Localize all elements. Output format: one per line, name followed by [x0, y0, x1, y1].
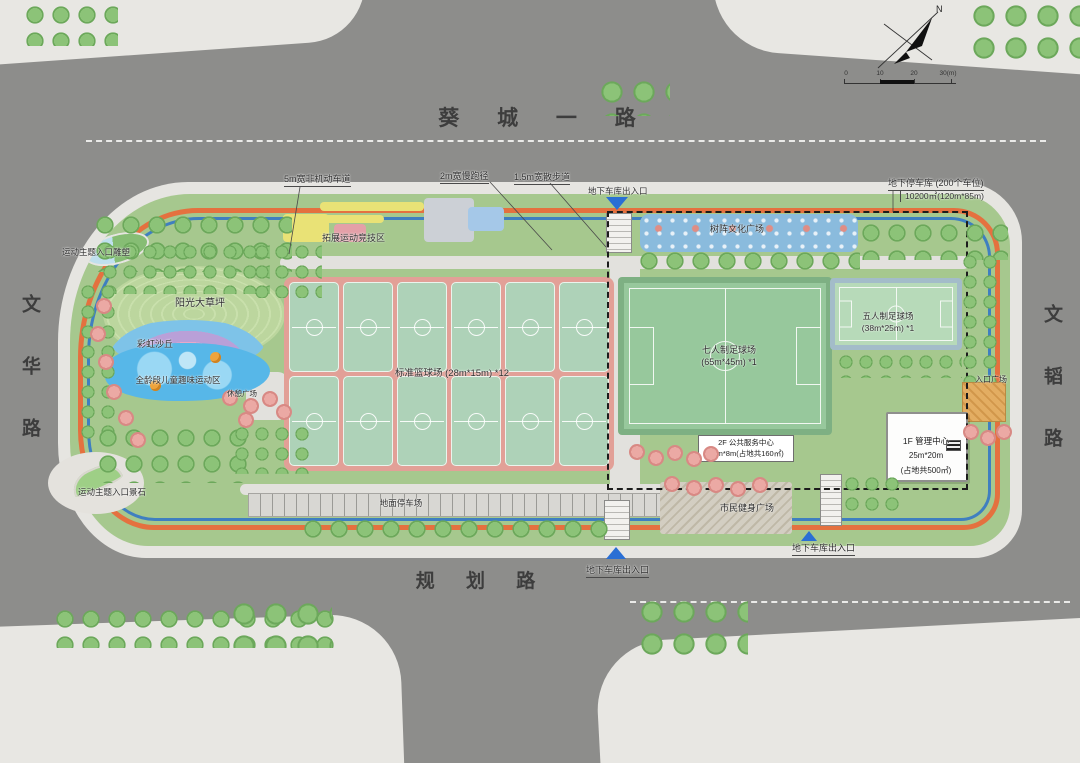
- scale-num: 10: [876, 70, 883, 77]
- service-center-name: 2F 公共服务中心: [718, 438, 774, 448]
- road-name-left: 文 华 路: [16, 294, 43, 448]
- label-tree-plaza: 树阵文化广场: [710, 222, 764, 235]
- tree-cluster: [636, 596, 748, 658]
- tree-cluster: [95, 425, 255, 483]
- pink-tree: [667, 445, 683, 461]
- label-children-zone: 全龄段儿童趣味运动区: [135, 374, 220, 386]
- label-mgmt-center-area: (占地共500㎡): [901, 465, 952, 476]
- road-name-right: 文 韬 路: [1038, 304, 1065, 458]
- scale-tick: [844, 79, 845, 84]
- site-plan: 2F 公共服务中心 20m*8m(占地共160㎡): [0, 0, 1080, 763]
- lane-marking-top: [86, 140, 1046, 142]
- label-jog-lane: 2m宽慢跑径: [440, 169, 489, 184]
- garage-exit-marker-top: [606, 197, 628, 210]
- pink-tree: [130, 432, 146, 448]
- scale-num: 30(m): [940, 70, 957, 77]
- pink-tree: [686, 480, 702, 496]
- tree-cluster: [232, 424, 312, 474]
- pink-tree: [708, 477, 724, 493]
- basketball-court: [397, 376, 447, 466]
- label-entry-plaza: 入口广场: [975, 374, 1007, 385]
- label-garage-exit-bottom: 地下车库出入口: [586, 563, 649, 578]
- scale-bar: 0 10 20 30(m): [844, 66, 956, 86]
- label-surface-parking: 地面停车场: [380, 497, 423, 509]
- pink-tree: [730, 481, 746, 497]
- tree-column: [960, 252, 1002, 382]
- tree-cluster: [842, 474, 902, 514]
- pink-tree: [703, 446, 719, 462]
- pink-tree: [96, 298, 112, 314]
- garage-exit-marker-bottom: [606, 547, 626, 559]
- label-underground-parking: 地下停车库 (200个车位): [888, 176, 984, 191]
- road-name-bottom: 规 划 路: [416, 566, 549, 593]
- entry-plaza-surface: [962, 382, 1006, 422]
- basketball-court: [397, 282, 447, 372]
- pink-tree: [118, 410, 134, 426]
- basketball-court: [343, 282, 393, 372]
- extension-zone-block: [468, 207, 504, 231]
- label-walk-lane: 1.5m宽散步道: [514, 170, 570, 185]
- basketball-court: [451, 282, 501, 372]
- label-lawn: 阳光大草坪: [175, 294, 225, 309]
- label-bike-lane: 5m宽非机动车道: [284, 172, 351, 187]
- pink-tree: [276, 404, 292, 420]
- tree-row: [836, 352, 962, 378]
- pink-tree: [90, 326, 106, 342]
- basketball-court: [343, 376, 393, 466]
- road-name-top: 葵 城 一 路: [438, 102, 652, 132]
- pink-tree: [106, 384, 122, 400]
- pink-tree: [664, 476, 680, 492]
- label-rainbow-dune: 彩虹沙丘: [137, 337, 173, 350]
- label-extension-zone: 拓展运动竞技区: [322, 231, 385, 244]
- scale-tick: [914, 79, 915, 84]
- pink-tree: [963, 424, 979, 440]
- pink-tree: [238, 412, 254, 428]
- basketball-court: [559, 376, 609, 466]
- pink-tree: [262, 391, 278, 407]
- pink-tree: [686, 451, 702, 467]
- play-equipment: [210, 352, 221, 363]
- label-entry-sculpture: 运动主题入口雕塑: [62, 246, 130, 258]
- scale-num: 0: [844, 70, 848, 77]
- label-football5-size: (38m*25m) *1: [862, 323, 914, 333]
- label-underground-parking-size: 10200㎡(120m*85m): [900, 190, 984, 202]
- pink-tree: [996, 424, 1012, 440]
- label-fitness-plaza: 市民健身广场: [720, 501, 774, 514]
- extension-zone-block: [424, 198, 474, 242]
- garage-exit-marker-bottom-right: [801, 531, 817, 541]
- extension-zone-block: [320, 202, 424, 211]
- label-football7-name: 七人制足球场: [702, 343, 756, 356]
- label-mgmt-center-name: 1F 管理中心: [903, 435, 949, 447]
- scale-num: 20: [910, 70, 917, 77]
- label-mgmt-center-size: 25m*20m: [909, 451, 943, 460]
- tree-cluster: [22, 2, 118, 46]
- pink-tree: [648, 450, 664, 466]
- label-football5-name: 五人制足球场: [862, 310, 913, 322]
- label-garage-exit-bottom-right: 地下车库出入口: [792, 541, 855, 556]
- tree-cluster: [252, 242, 322, 298]
- extension-zone-block: [320, 215, 384, 223]
- scale-tick: [951, 79, 952, 84]
- basketball-court: [559, 282, 609, 372]
- tree-row: [300, 516, 610, 542]
- label-entry-stone: 运动主题入口景石: [78, 486, 146, 498]
- tree-cluster: [228, 598, 332, 648]
- label-rest-plaza: 休憩广场: [227, 388, 257, 399]
- basketball-court: [505, 376, 555, 466]
- basketball-court: [505, 282, 555, 372]
- pink-tree: [980, 430, 996, 446]
- label-basketball-courts: 标准篮球场 (28m*15m) *12: [395, 365, 509, 379]
- pink-tree: [752, 477, 768, 493]
- pink-tree: [629, 444, 645, 460]
- tree-row: [636, 248, 860, 274]
- label-garage-exit-top: 地下车库出入口: [588, 185, 648, 197]
- service-center-size: 20m*8m(占地共160㎡): [708, 449, 783, 459]
- basketball-court: [451, 376, 501, 466]
- tree-cluster: [968, 0, 1080, 68]
- label-football7-size: (65m*45m) *1: [701, 357, 757, 367]
- pink-tree: [98, 354, 114, 370]
- scale-bar-fill: [880, 80, 914, 84]
